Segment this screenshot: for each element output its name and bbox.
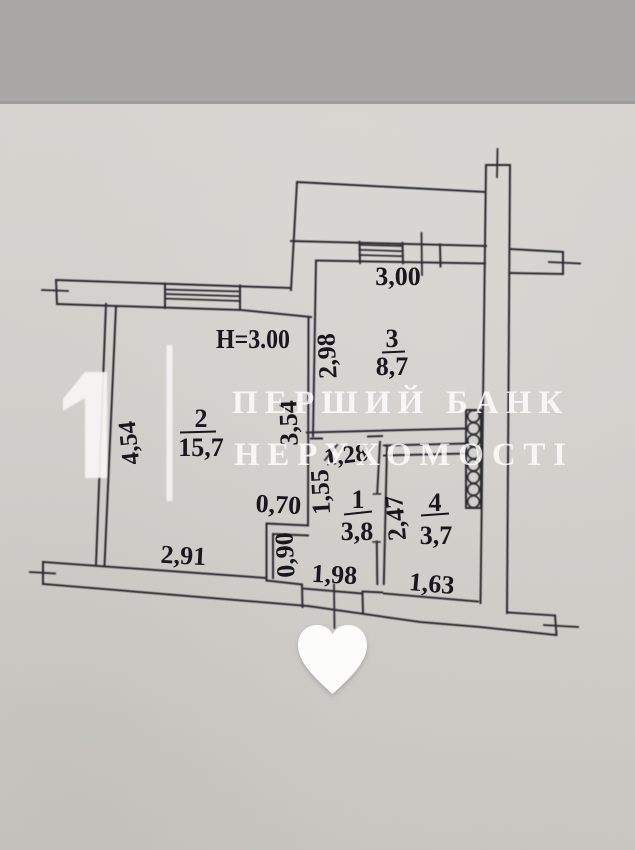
svg-text:0,70: 0,70 xyxy=(255,489,302,520)
svg-text:4,54: 4,54 xyxy=(114,419,145,466)
svg-text:1,55: 1,55 xyxy=(305,469,336,516)
svg-text:1: 1 xyxy=(352,485,365,514)
svg-text:1,63: 1,63 xyxy=(408,567,456,600)
svg-text:2,98: 2,98 xyxy=(311,333,342,380)
svg-text:4: 4 xyxy=(429,488,442,517)
svg-text:8,7: 8,7 xyxy=(376,352,409,381)
svg-text:3,00: 3,00 xyxy=(375,262,421,291)
svg-text:3,7: 3,7 xyxy=(420,521,453,550)
svg-text:2: 2 xyxy=(195,404,208,433)
svg-text:1,98: 1,98 xyxy=(311,559,358,590)
svg-text:2,47: 2,47 xyxy=(379,494,412,542)
svg-text:2,91: 2,91 xyxy=(160,540,207,571)
svg-text:15,7: 15,7 xyxy=(178,433,224,462)
svg-text:ПЕРШИЙ БАНК: ПЕРШИЙ БАНК xyxy=(232,384,570,421)
svg-text:3: 3 xyxy=(386,324,399,353)
svg-text:НЕРУХОМОСТІ: НЕРУХОМОСТІ xyxy=(234,437,574,473)
svg-text:0,90: 0,90 xyxy=(269,532,300,579)
svg-text:H=3.00: H=3.00 xyxy=(216,324,290,354)
svg-text:3,8: 3,8 xyxy=(341,517,374,546)
